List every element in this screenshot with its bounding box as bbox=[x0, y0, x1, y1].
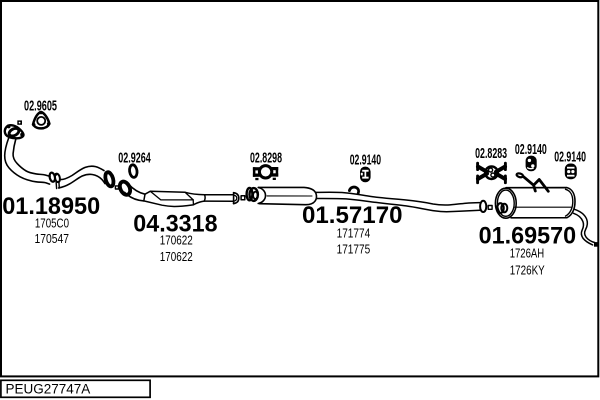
svg-text:02.9140: 02.9140 bbox=[350, 152, 381, 169]
svg-text:02.8283: 02.8283 bbox=[475, 145, 507, 162]
svg-text:170622: 170622 bbox=[160, 249, 193, 264]
svg-text:02.9605: 02.9605 bbox=[24, 98, 57, 115]
svg-text:1705C0: 1705C0 bbox=[35, 215, 69, 230]
svg-text:02.9140: 02.9140 bbox=[554, 149, 586, 166]
svg-text:02.9264: 02.9264 bbox=[118, 149, 151, 166]
svg-text:1726KY: 1726KY bbox=[510, 263, 545, 278]
svg-text:170622: 170622 bbox=[160, 232, 193, 247]
svg-text:02.8298: 02.8298 bbox=[250, 150, 282, 167]
svg-text:1726AH: 1726AH bbox=[510, 246, 545, 261]
svg-text:PEUG27747A: PEUG27747A bbox=[6, 382, 91, 397]
svg-text:02.9140: 02.9140 bbox=[515, 141, 547, 158]
svg-text:170547: 170547 bbox=[35, 231, 70, 246]
svg-text:171774: 171774 bbox=[337, 225, 371, 240]
svg-text:171775: 171775 bbox=[337, 242, 371, 257]
